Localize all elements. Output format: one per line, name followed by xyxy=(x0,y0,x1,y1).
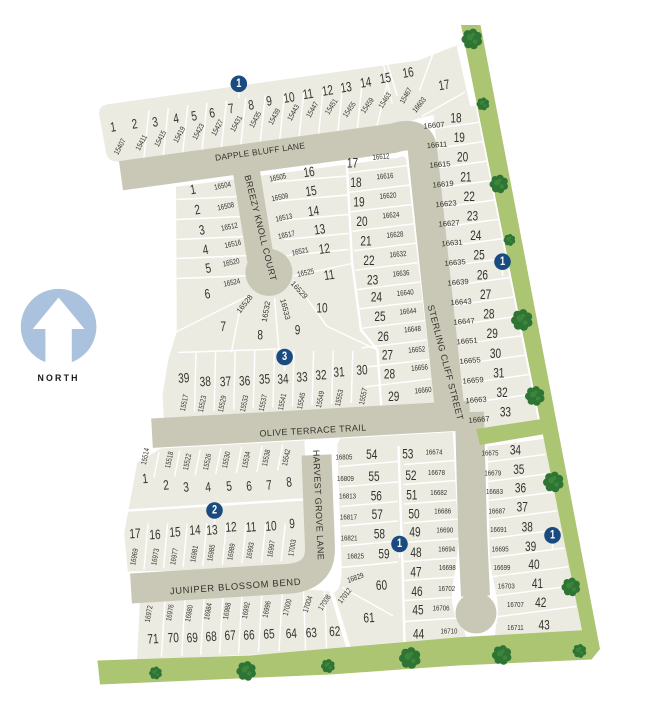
svg-text:16825: 16825 xyxy=(347,553,364,561)
svg-text:20: 20 xyxy=(457,149,468,165)
svg-text:16702: 16702 xyxy=(438,585,455,593)
svg-text:19: 19 xyxy=(454,130,465,146)
svg-text:16678: 16678 xyxy=(428,469,445,477)
svg-text:33: 33 xyxy=(296,369,308,385)
svg-text:55: 55 xyxy=(368,469,379,485)
svg-text:22: 22 xyxy=(363,253,374,269)
svg-text:16675: 16675 xyxy=(482,450,499,458)
svg-text:34: 34 xyxy=(277,371,289,387)
svg-text:50: 50 xyxy=(408,506,419,522)
svg-text:16663: 16663 xyxy=(465,395,487,406)
svg-text:16632: 16632 xyxy=(389,250,407,259)
svg-text:52: 52 xyxy=(405,468,416,484)
svg-text:48: 48 xyxy=(410,545,421,561)
svg-text:16655: 16655 xyxy=(459,355,481,366)
svg-text:16695: 16695 xyxy=(492,546,509,554)
svg-text:16631: 16631 xyxy=(441,238,463,249)
svg-text:16640: 16640 xyxy=(397,289,415,298)
svg-text:16686: 16686 xyxy=(434,508,451,516)
svg-text:9: 9 xyxy=(295,322,301,338)
svg-text:16615: 16615 xyxy=(429,159,451,170)
svg-text:46: 46 xyxy=(411,583,422,599)
svg-text:16674: 16674 xyxy=(426,449,443,457)
svg-text:41: 41 xyxy=(532,576,543,592)
svg-text:16683: 16683 xyxy=(486,489,503,497)
svg-text:16817: 16817 xyxy=(340,514,357,522)
svg-text:37: 37 xyxy=(219,373,231,389)
svg-text:44: 44 xyxy=(413,626,424,642)
svg-text:16821: 16821 xyxy=(341,535,358,543)
svg-text:9: 9 xyxy=(289,515,296,531)
svg-text:16643: 16643 xyxy=(450,296,472,307)
svg-text:51: 51 xyxy=(406,487,417,503)
svg-text:17: 17 xyxy=(347,155,358,171)
svg-text:58: 58 xyxy=(374,526,385,542)
svg-text:16667: 16667 xyxy=(468,414,490,425)
svg-text:59: 59 xyxy=(378,546,389,562)
svg-text:16706: 16706 xyxy=(433,605,450,613)
svg-text:11: 11 xyxy=(245,519,257,535)
svg-text:69: 69 xyxy=(186,629,198,645)
svg-text:1: 1 xyxy=(397,538,402,550)
svg-text:18: 18 xyxy=(350,175,361,191)
svg-text:16612: 16612 xyxy=(372,153,390,162)
svg-text:16627: 16627 xyxy=(438,218,460,229)
svg-text:16611: 16611 xyxy=(426,140,447,151)
svg-text:16687: 16687 xyxy=(488,508,505,516)
svg-text:23: 23 xyxy=(467,208,478,224)
svg-text:16694: 16694 xyxy=(438,546,455,554)
svg-text:16: 16 xyxy=(149,526,161,542)
svg-text:29: 29 xyxy=(388,388,399,404)
svg-text:22: 22 xyxy=(464,188,475,204)
svg-text:57: 57 xyxy=(372,507,383,523)
svg-text:67: 67 xyxy=(224,627,236,643)
svg-text:16707: 16707 xyxy=(507,602,524,610)
svg-text:16652: 16652 xyxy=(408,346,426,355)
svg-text:38: 38 xyxy=(199,373,211,389)
svg-text:16623: 16623 xyxy=(435,198,457,209)
svg-text:31: 31 xyxy=(333,364,345,380)
svg-text:16691: 16691 xyxy=(490,527,507,535)
svg-text:36: 36 xyxy=(515,480,526,496)
svg-text:31: 31 xyxy=(493,365,504,381)
svg-text:35: 35 xyxy=(513,462,524,478)
svg-text:1: 1 xyxy=(500,256,505,268)
svg-text:16699: 16699 xyxy=(493,564,510,572)
svg-text:1: 1 xyxy=(236,78,241,90)
svg-text:18: 18 xyxy=(450,110,461,126)
svg-text:32: 32 xyxy=(497,385,508,401)
svg-text:56: 56 xyxy=(371,488,382,504)
svg-text:42: 42 xyxy=(535,595,546,611)
svg-text:47: 47 xyxy=(410,564,421,580)
svg-text:16620: 16620 xyxy=(379,192,397,201)
svg-text:24: 24 xyxy=(470,228,481,244)
svg-text:23: 23 xyxy=(367,272,378,288)
svg-text:16624: 16624 xyxy=(382,211,400,220)
svg-text:21: 21 xyxy=(360,233,371,249)
svg-text:66: 66 xyxy=(243,627,255,643)
svg-text:1: 1 xyxy=(550,530,555,542)
svg-text:16813: 16813 xyxy=(339,493,356,501)
svg-text:13: 13 xyxy=(206,522,218,538)
svg-text:26: 26 xyxy=(378,328,389,344)
svg-text:38: 38 xyxy=(522,519,533,535)
svg-text:62: 62 xyxy=(329,623,341,639)
svg-text:16607: 16607 xyxy=(423,120,445,131)
svg-text:39: 39 xyxy=(178,370,190,386)
svg-text:16635: 16635 xyxy=(444,257,466,268)
svg-text:16660: 16660 xyxy=(414,387,432,396)
svg-text:25: 25 xyxy=(474,247,485,263)
svg-text:16805: 16805 xyxy=(335,454,352,462)
svg-text:54: 54 xyxy=(366,447,377,463)
svg-text:30: 30 xyxy=(490,345,501,361)
svg-text:19: 19 xyxy=(353,194,364,210)
svg-text:36: 36 xyxy=(239,373,251,389)
svg-text:65: 65 xyxy=(263,626,275,642)
svg-text:63: 63 xyxy=(305,624,317,640)
svg-text:NORTH: NORTH xyxy=(37,373,79,383)
svg-text:16619: 16619 xyxy=(432,179,454,190)
svg-text:16698: 16698 xyxy=(439,564,456,572)
svg-text:16648: 16648 xyxy=(404,325,422,334)
svg-text:10: 10 xyxy=(265,518,277,534)
svg-text:27: 27 xyxy=(480,287,491,303)
svg-text:16628: 16628 xyxy=(386,231,404,240)
svg-text:16703: 16703 xyxy=(498,583,515,591)
svg-text:3: 3 xyxy=(282,351,287,363)
svg-text:16639: 16639 xyxy=(447,277,469,288)
svg-text:16616: 16616 xyxy=(376,172,394,181)
svg-text:16682: 16682 xyxy=(430,489,447,497)
svg-text:53: 53 xyxy=(402,446,413,462)
svg-text:71: 71 xyxy=(147,631,159,647)
svg-text:30: 30 xyxy=(356,362,368,378)
svg-text:70: 70 xyxy=(167,629,179,645)
svg-text:12: 12 xyxy=(225,519,237,535)
svg-text:61: 61 xyxy=(363,609,375,625)
svg-text:16679: 16679 xyxy=(484,470,501,478)
svg-text:16656: 16656 xyxy=(411,364,429,373)
svg-text:16644: 16644 xyxy=(399,308,417,317)
svg-text:16711: 16711 xyxy=(507,625,524,633)
svg-text:16636: 16636 xyxy=(392,270,410,279)
svg-text:2: 2 xyxy=(212,505,217,517)
svg-text:8: 8 xyxy=(257,327,263,343)
svg-text:17: 17 xyxy=(129,525,141,541)
svg-text:37: 37 xyxy=(517,499,528,515)
svg-text:27: 27 xyxy=(382,347,393,363)
svg-text:32: 32 xyxy=(315,367,327,383)
svg-text:28: 28 xyxy=(384,366,395,382)
svg-text:15: 15 xyxy=(169,524,181,540)
svg-text:16651: 16651 xyxy=(456,336,478,347)
svg-text:29: 29 xyxy=(487,326,498,342)
svg-text:68: 68 xyxy=(205,628,217,644)
svg-text:20: 20 xyxy=(356,214,367,230)
svg-text:14: 14 xyxy=(189,522,201,538)
svg-text:64: 64 xyxy=(285,625,297,641)
svg-text:24: 24 xyxy=(371,289,382,305)
svg-text:40: 40 xyxy=(528,556,539,572)
svg-text:7: 7 xyxy=(220,319,226,335)
svg-text:45: 45 xyxy=(412,602,423,618)
svg-text:16809: 16809 xyxy=(337,476,354,484)
svg-text:49: 49 xyxy=(409,524,420,540)
svg-text:25: 25 xyxy=(374,309,385,325)
svg-text:16659: 16659 xyxy=(462,375,484,386)
svg-text:35: 35 xyxy=(258,371,270,387)
svg-text:28: 28 xyxy=(483,306,494,322)
svg-text:39: 39 xyxy=(525,538,536,554)
svg-text:16710: 16710 xyxy=(440,628,457,636)
svg-text:34: 34 xyxy=(510,442,521,458)
svg-text:26: 26 xyxy=(477,267,488,283)
svg-text:21: 21 xyxy=(460,169,471,185)
svg-text:33: 33 xyxy=(500,404,511,420)
svg-text:43: 43 xyxy=(539,617,550,633)
svg-text:16647: 16647 xyxy=(453,316,475,327)
svg-text:16690: 16690 xyxy=(436,527,453,535)
svg-text:60: 60 xyxy=(375,577,387,593)
svg-text:10: 10 xyxy=(316,300,327,316)
